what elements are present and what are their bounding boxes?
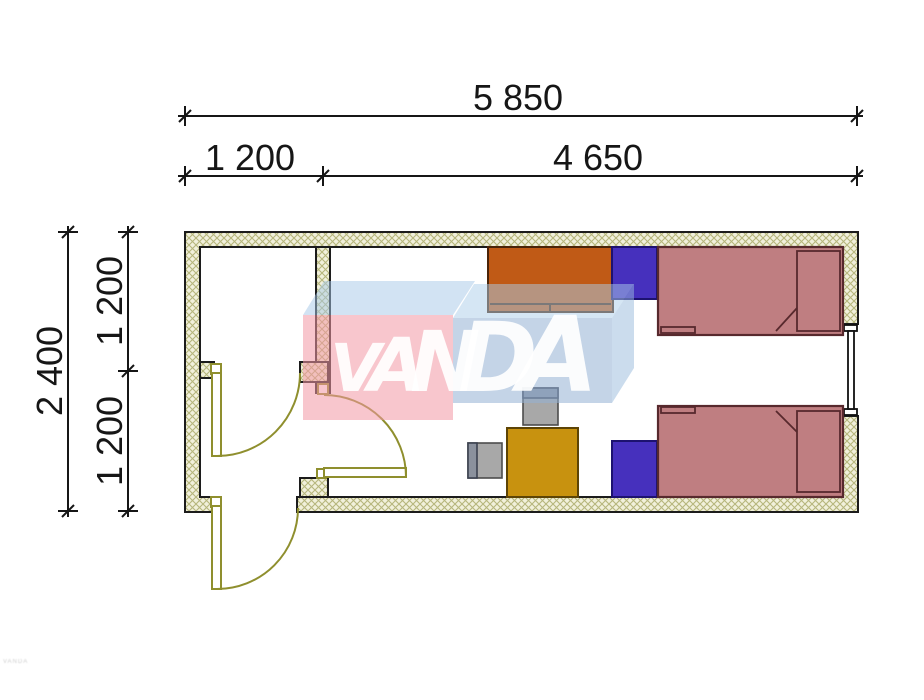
- dim-segment-left-label: 1 200: [205, 137, 295, 178]
- bed-bottom: [658, 406, 843, 497]
- chair-left: [468, 443, 502, 478]
- entrance-opening: [216, 495, 296, 514]
- interior-door-leaf: [324, 468, 406, 477]
- window-glazing: [848, 331, 854, 409]
- bottom-wall-stub: [300, 478, 328, 497]
- micro-footer-text: VANDA: [3, 659, 28, 665]
- dim-total-width-label: 5 850: [473, 77, 563, 118]
- dim-total-height-label: 2 400: [29, 326, 70, 416]
- bed-bottom-frame: [658, 406, 843, 497]
- entrance-door-leaf: [212, 506, 221, 589]
- watermark-pink-box-top-face: [303, 281, 475, 315]
- dim-total-width: 5 850: [178, 77, 863, 126]
- dim-segment-right-label: 4 650: [553, 137, 643, 178]
- watermark-logo: V A N D A: [303, 281, 634, 420]
- vestibule-door-swing-arc: [217, 373, 300, 456]
- dim-total-height: 2 400: [29, 226, 78, 517]
- vestibule-door-leaf: [212, 373, 221, 456]
- chair-left-backrest: [468, 443, 477, 478]
- entrance-door-swing-arc: [217, 508, 298, 589]
- dim-segment-bottom-label: 1 200: [89, 396, 130, 486]
- dim-height-segments: 1 200 1 200: [89, 226, 138, 517]
- nightstand-bottom: [612, 441, 657, 497]
- dim-segment-top-label: 1 200: [89, 256, 130, 346]
- bed-top: [658, 247, 843, 335]
- desk: [507, 428, 578, 497]
- watermark-letter: A: [511, 294, 599, 416]
- bed-top-frame: [658, 247, 843, 335]
- floor-plan-canvas: V A N D A 5 850 1 200 4 650: [0, 0, 924, 700]
- vestibule-door: [211, 364, 300, 456]
- floor-plan-drawing: V A N D A 5 850 1 200 4 650: [0, 0, 924, 700]
- dim-width-segments: 1 200 4 650: [178, 137, 863, 186]
